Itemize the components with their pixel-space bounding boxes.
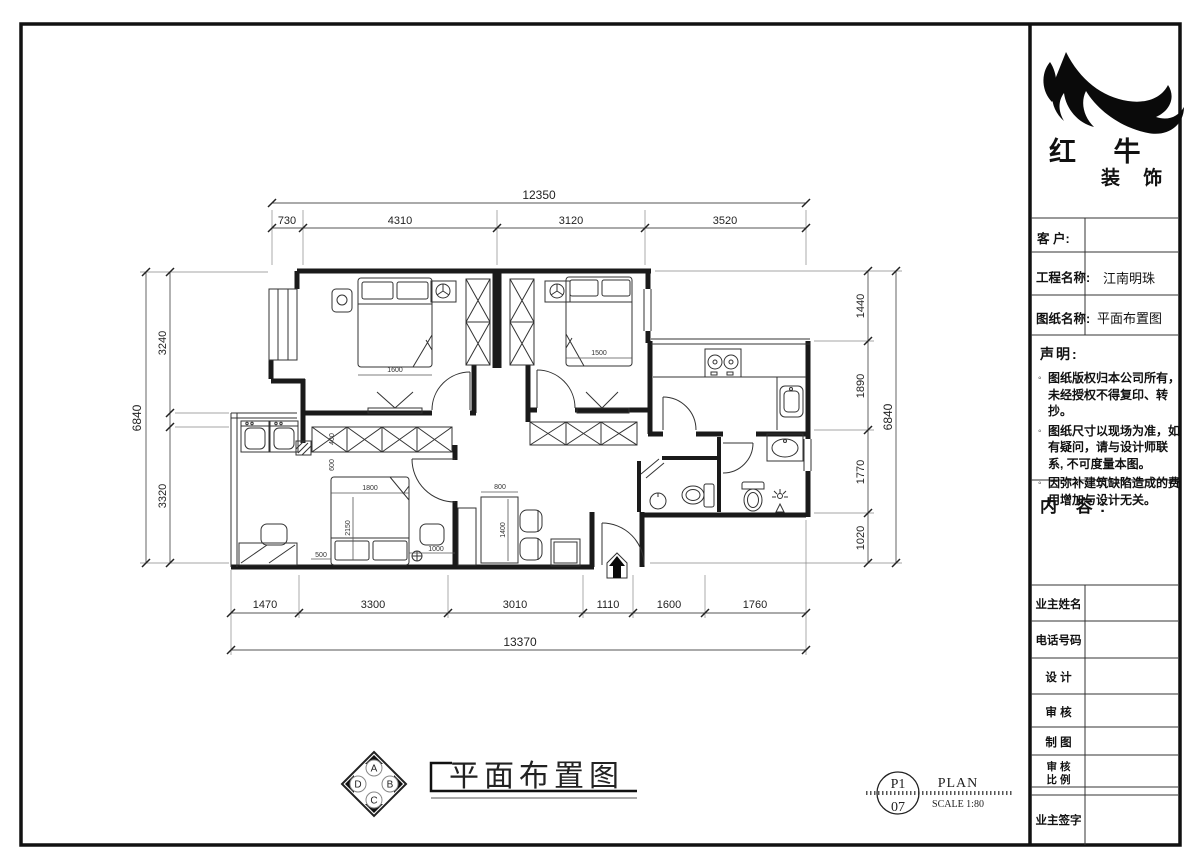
chair [420,524,444,545]
dim-table-l: 1400 [500,522,507,538]
sheet-no-top: P1 [891,777,906,792]
dim-bed3-l: 2150 [345,520,352,536]
dim-side-right: 1000 [428,546,444,553]
sheet-no-bottom: 07 [891,800,905,815]
dim-top-seg: 730 [278,215,296,227]
statement-text: 图纸版权归本公司所有，未经授权不得复印、转抄。 [1048,370,1180,420]
dining-furniture [458,497,580,566]
design-label: 设 计 [1032,669,1085,685]
window-bedroom2-right [644,289,651,331]
brand-subname: 装 饰 [1101,163,1171,190]
dim-right-seg: 1020 [855,526,867,550]
content-label: 内 容: [1040,492,1112,517]
compass-e: B [387,780,394,791]
statement-heading: 声明: [1040,344,1079,364]
bedroom3-furniture [239,477,444,565]
compass: A B C D [342,752,406,816]
project-value: 江南明珠 [1103,268,1155,287]
stove-icon [705,349,741,377]
compass-n: A [371,764,378,775]
statement-list: ◦ 图纸版权归本公司所有，未经授权不得复印、转抄。 ◦ 图纸尺寸以现场为准，如有… [1038,370,1180,511]
dim-clearance: 600 [329,459,336,471]
ceiling-lamp-icon [412,551,422,561]
washbasin-icon [767,434,803,461]
nightstand [332,289,352,312]
closet-hallway [530,422,637,445]
compass-s: C [370,796,377,807]
door-bedroom3 [412,459,455,502]
owner-sign-label: 业主签字 [1032,812,1085,828]
scale-row-label: 比 例 [1032,772,1085,787]
door-master [432,372,470,410]
window-bath-right [804,439,811,471]
door-folding-wc [641,459,664,478]
sideboard [458,508,476,565]
drawing-sheet: 1600 1500 1800 2150 400 600 500 1000 800… [0,0,1200,865]
dim-table-w: 800 [494,484,506,491]
sheet-name-value: 平面布置图 [1097,308,1162,327]
lamp [337,295,347,305]
wardrobe-bedroom2 [510,279,534,365]
windows [231,289,811,567]
sheet-number: P1 07 PLAN SCALE 1:80 [866,772,1012,815]
project-label: 工程名称: [1036,267,1090,286]
dim-top-seg: 3120 [559,215,583,227]
statement-item: ◦ 图纸尺寸以现场为准，如有疑问，请与设计师联系, 不可度量本图。 [1038,423,1180,473]
chair [520,510,542,532]
bullet-marker: ◦ [1038,370,1048,420]
dim-bottom-seg: 1470 [253,599,277,611]
drawing-title: 平面布置图 [431,760,637,798]
sheet-label: PLAN [938,776,979,791]
kitchen-sink-icon [780,386,803,417]
desk [239,543,297,565]
window-master-left [269,289,297,360]
floor-plan-canvas: 1600 1500 1800 2150 400 600 500 1000 800… [0,0,1200,865]
chair [261,524,287,545]
dim-bed3-w: 1800 [362,485,378,492]
ac-unit-icon [431,281,456,302]
shower-head-icon [772,489,788,512]
kitchen-fixtures [653,349,806,430]
washer-icon [270,421,298,452]
dim-bottom-seg: 3300 [361,599,385,611]
washer-icon [241,421,269,452]
dim-bottom-seg: 3010 [503,599,527,611]
draft-label: 制 图 [1032,734,1085,750]
wardrobe-master [466,279,490,365]
dim-left-seg: 3240 [157,331,169,355]
entry-arrow-icon [607,553,627,578]
counter [653,377,806,430]
statement-item: ◦ 图纸版权归本公司所有，未经授权不得复印、转抄。 [1038,370,1180,420]
dim-right-total: 6840 [881,403,895,430]
tv-master-icon [368,392,422,413]
owner-name-label: 业主姓名 [1032,596,1085,612]
dim-bottom-seg: 1110 [597,599,620,611]
door-kitchen [663,397,696,430]
dim-wardrobe: 400 [329,433,336,445]
master-bedroom-furniture [332,278,456,413]
chair [520,538,542,560]
bedroom2-furniture [545,277,632,413]
phone-label: 电话号码 [1032,632,1085,648]
door-bathroom [723,443,753,473]
review-label: 审 核 [1032,704,1085,720]
cabinet [551,539,580,566]
bull-logo-icon [1043,52,1184,134]
client-label: 客 户: [1037,228,1070,247]
dim-master-bed: 1600 [387,367,403,374]
toilet-right-icon [742,482,764,511]
door-bedroom2 [537,370,575,408]
dim-left-total: 6840 [130,404,144,431]
dim-top-seg: 4310 [388,215,412,227]
doors [412,370,753,565]
statement-text: 图纸尺寸以现场为准，如有疑问，请与设计师联系, 不可度量本图。 [1048,423,1180,473]
sheet-name-label: 图纸名称: [1036,308,1090,327]
compass-w: D [354,780,361,791]
dim-right-seg: 1890 [855,374,867,398]
dim-bottom-seg: 1600 [657,599,681,611]
dim-bottom-total: 13370 [503,635,537,649]
bullet-marker: ◦ [1038,423,1048,473]
window-kitchen-top [651,339,810,344]
toilet-left-icon [682,484,714,507]
plan-title-text: 平面布置图 [449,760,624,793]
dim-right-seg: 1440 [855,294,867,318]
dim-right-seg: 1770 [855,460,867,484]
dim-bed2: 1500 [591,350,607,357]
dim-bottom-seg: 1760 [743,599,767,611]
dim-left-seg: 3320 [157,484,169,508]
scale-label: SCALE 1:80 [932,799,984,810]
laundry-fixtures [241,421,298,452]
dim-side-left: 500 [315,552,327,559]
dim-top-total: 12350 [522,188,556,202]
dim-top-seg: 3520 [713,215,737,227]
